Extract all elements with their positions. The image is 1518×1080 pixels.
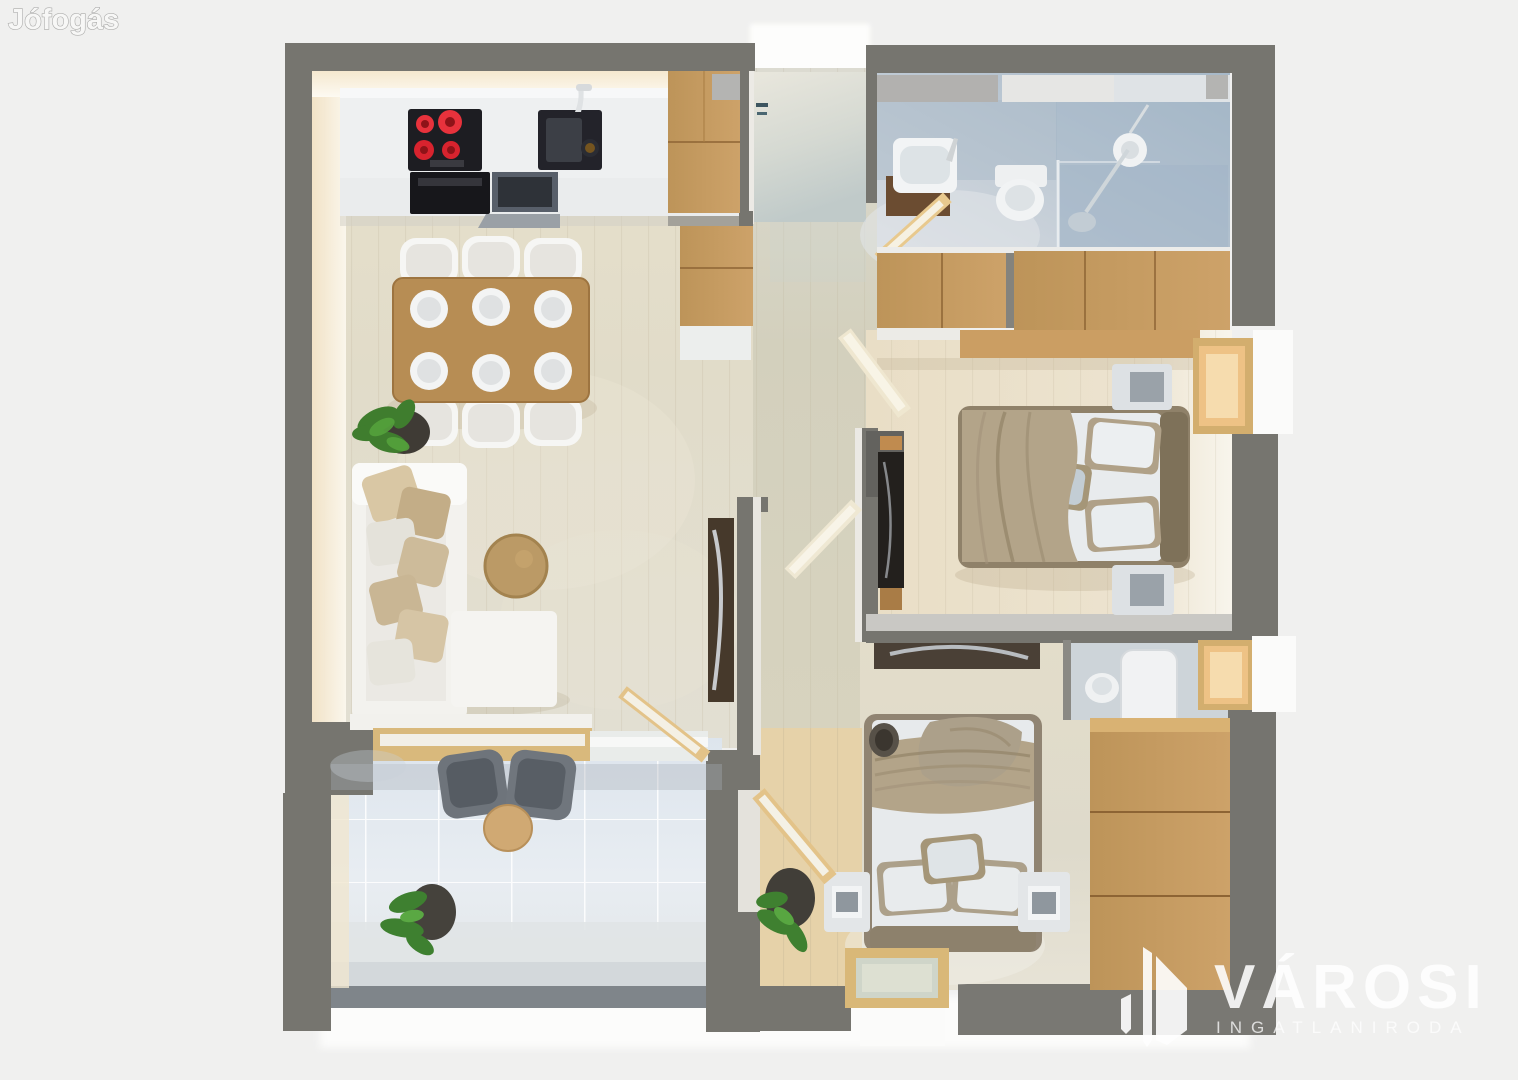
svg-text:VÁROSI: VÁROSI (1214, 953, 1488, 1022)
svg-text:Jófogás: Jófogás (8, 4, 119, 36)
svg-text:INGATLANIRODA: INGATLANIRODA (1216, 1018, 1471, 1037)
